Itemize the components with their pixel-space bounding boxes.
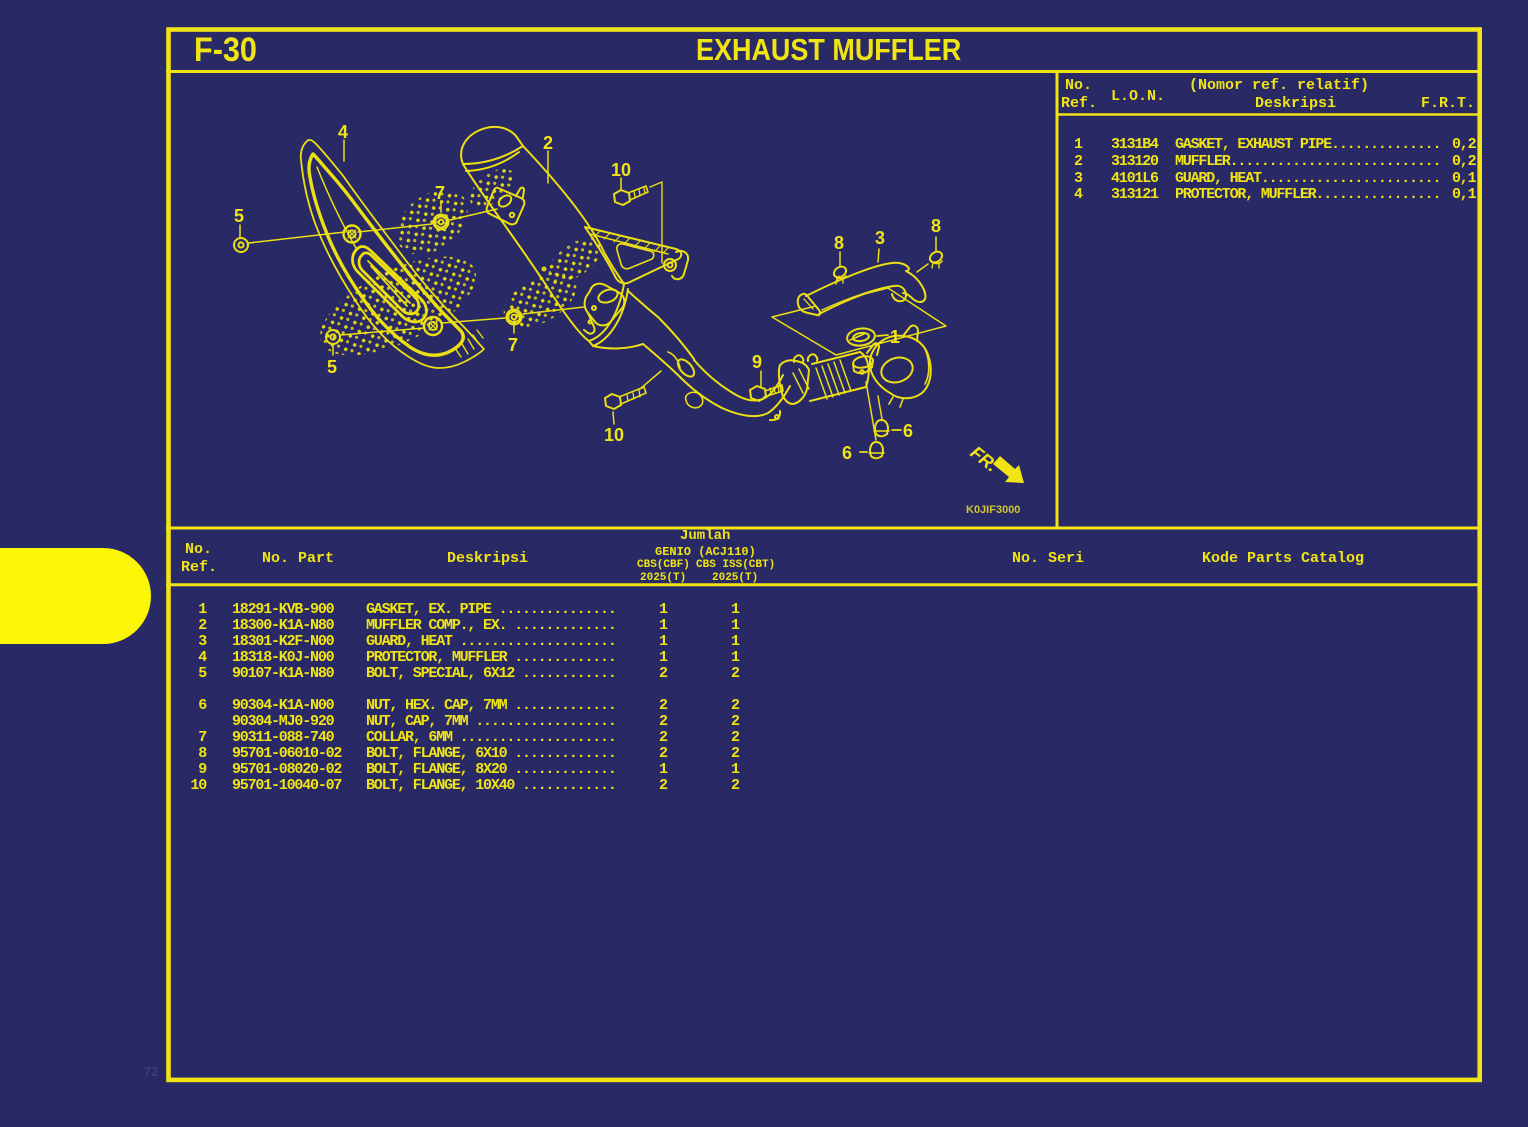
svg-text:6: 6 — [903, 421, 913, 441]
svg-text:9: 9 — [752, 352, 762, 372]
svg-text:K0JIF3000: K0JIF3000 — [966, 504, 1020, 516]
svg-text:8: 8 — [931, 216, 941, 236]
svg-text:5: 5 — [234, 206, 244, 226]
svg-text:4: 4 — [338, 122, 348, 142]
svg-text:7: 7 — [435, 183, 445, 203]
svg-text:2: 2 — [543, 133, 553, 153]
svg-text:6: 6 — [842, 443, 852, 463]
svg-text:10: 10 — [604, 425, 624, 445]
svg-text:1: 1 — [890, 327, 900, 347]
svg-text:7: 7 — [508, 335, 518, 355]
svg-text:3: 3 — [875, 228, 885, 248]
svg-text:5: 5 — [327, 357, 337, 377]
svg-text:8: 8 — [834, 233, 844, 253]
svg-text:10: 10 — [611, 160, 631, 180]
svg-text:FR.: FR. — [967, 442, 1002, 476]
